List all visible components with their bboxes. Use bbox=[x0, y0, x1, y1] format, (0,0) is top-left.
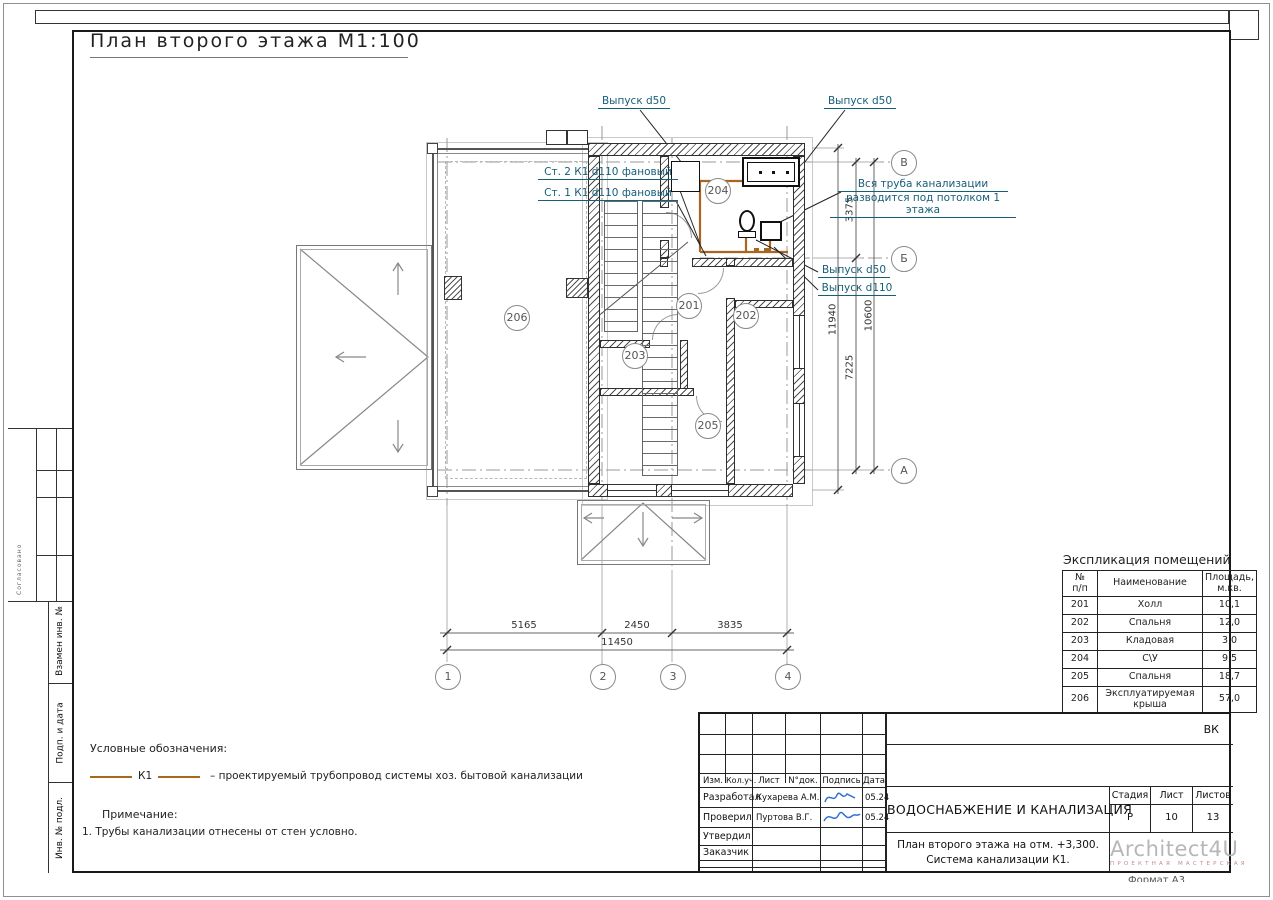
window bbox=[608, 484, 656, 497]
tb-sheets-header: Листов bbox=[1193, 790, 1233, 801]
dim-7225: 7225 bbox=[845, 348, 856, 388]
title-block: Изм. Кол.уч. Лист N°док. Подпись Дата Ра… bbox=[698, 712, 1231, 873]
sink bbox=[760, 221, 782, 241]
cell-num: 201 bbox=[1063, 597, 1098, 615]
dim-2450: 2450 bbox=[607, 620, 667, 631]
dim-10600: 10600 bbox=[864, 296, 875, 336]
tb-line bbox=[887, 832, 1233, 833]
cell-area: 9,5 bbox=[1203, 651, 1257, 669]
tb-line bbox=[820, 714, 821, 871]
tb-line bbox=[887, 744, 1233, 745]
tb-role-client: Заказчик bbox=[703, 847, 749, 858]
wall-bottom bbox=[588, 484, 608, 497]
company-logo-subtitle: ПРОЕКТНАЯ МАСТЕРСКАЯ bbox=[1110, 861, 1233, 867]
note-1: 1. Трубы канализации отнесены от стен ус… bbox=[82, 826, 357, 838]
tb-line bbox=[700, 827, 885, 828]
left-gable-roof-inner bbox=[300, 249, 428, 466]
bathtub-dot bbox=[759, 171, 762, 174]
chimney-block bbox=[567, 130, 588, 145]
col-header-area: Площадь, м.кв. bbox=[1203, 571, 1257, 597]
tb-sheet-header: Лист bbox=[1151, 790, 1192, 801]
tb-line bbox=[700, 754, 885, 755]
side-line bbox=[36, 497, 72, 498]
stair-flight-left bbox=[604, 200, 638, 332]
bathtub-dot bbox=[786, 171, 789, 174]
col-header-name: Наименование bbox=[1098, 571, 1203, 597]
room-label-203: 203 bbox=[622, 343, 648, 369]
cell-name: Кладовая bbox=[1098, 633, 1203, 651]
annotation-outlet-d50-left: Выпуск d50 bbox=[598, 95, 670, 109]
annotation-ceiling-note-2: разводится под потолком 1 этажа bbox=[830, 192, 1016, 218]
parapet-post bbox=[427, 143, 438, 154]
stair-flight-right bbox=[642, 200, 678, 476]
company-logo: Architect4U bbox=[1110, 837, 1233, 861]
annotation-ceiling-note-1: Вся труба канализации bbox=[838, 178, 1008, 192]
tb-date-developed: 05.24 bbox=[865, 793, 889, 803]
window bbox=[793, 316, 805, 368]
tb-role-checked: Проверил bbox=[703, 812, 752, 823]
side-line bbox=[36, 555, 72, 556]
sidebar-approve-label: Согласовано bbox=[16, 544, 23, 595]
partition-202-left bbox=[726, 258, 735, 266]
explication-title: Экспликация помещений bbox=[1063, 552, 1229, 567]
signature-checked bbox=[822, 808, 862, 826]
side-line bbox=[8, 428, 72, 429]
tb-project-title: ВОДОСНАБЖЕНИЕ И КАНАЛИЗАЦИЯ bbox=[887, 802, 1109, 817]
cell-area: 18,7 bbox=[1203, 669, 1257, 687]
cell-area: 57,0 bbox=[1203, 687, 1257, 713]
window bbox=[672, 484, 728, 497]
tb-line bbox=[862, 714, 863, 871]
chimney-block bbox=[546, 130, 567, 145]
wall-top bbox=[588, 143, 805, 156]
cell-num: 203 bbox=[1063, 633, 1098, 651]
tb-name-checked: Пуртова В.Г. bbox=[756, 813, 812, 823]
table-row: 204 С\У 9,5 bbox=[1063, 651, 1257, 669]
signature-developed bbox=[822, 788, 862, 806]
tb-line bbox=[887, 786, 1233, 787]
k1-line-segment bbox=[90, 776, 132, 778]
tb-col-podpis: Подпись bbox=[821, 776, 862, 786]
dim-5165: 5165 bbox=[494, 620, 554, 631]
cell-name: С\У bbox=[1098, 651, 1203, 669]
tb-role-developed: Разработал bbox=[703, 792, 761, 803]
k1-line-segment bbox=[158, 776, 200, 778]
k1-label: К1 bbox=[138, 770, 152, 782]
wall-right bbox=[793, 456, 805, 484]
tb-col-list: Лист bbox=[753, 776, 785, 786]
tb-stage-header: Стадия bbox=[1110, 790, 1150, 801]
tb-date-checked: 05.24 bbox=[865, 813, 889, 823]
annotation-riser-2: Ст. 2 К1 d110 фановый bbox=[538, 166, 678, 180]
bathtub bbox=[742, 157, 800, 187]
table-row: 205 Спальня 18,7 bbox=[1063, 669, 1257, 687]
wall-pilaster bbox=[444, 276, 462, 300]
table-row: 201 Холл 10,1 bbox=[1063, 597, 1257, 615]
tb-line bbox=[700, 845, 885, 846]
cell-name: Спальня bbox=[1098, 615, 1203, 633]
cell-area: 12,0 bbox=[1203, 615, 1257, 633]
left-gable-roof bbox=[296, 245, 432, 470]
format-note-clipped: Формат А3 bbox=[1128, 875, 1198, 882]
wall-left bbox=[588, 156, 600, 484]
side-line bbox=[36, 470, 72, 471]
k1-description: – проектируемый трубопровод системы хоз.… bbox=[210, 770, 583, 782]
dim-11450: 11450 bbox=[587, 637, 647, 648]
cell-num: 204 bbox=[1063, 651, 1098, 669]
tb-col-ndok: N°док. bbox=[786, 776, 820, 786]
cell-area: 10,1 bbox=[1203, 597, 1257, 615]
table-row: 206 Эксплуатируемая крыша 57,0 bbox=[1063, 687, 1257, 713]
axis-bubble-2: 2 bbox=[590, 664, 616, 690]
room-label-204: 204 bbox=[705, 178, 731, 204]
tb-line bbox=[700, 734, 885, 735]
cell-name: Холл bbox=[1098, 597, 1203, 615]
annotation-outlet-d110: Выпуск d110 bbox=[818, 282, 896, 296]
drawing-sheet: План второго этажа М1:100 bbox=[0, 0, 1273, 900]
wall-bottom bbox=[656, 484, 672, 497]
axis-bubble-1: 1 bbox=[435, 664, 461, 690]
axis-bubble-A: А bbox=[891, 458, 917, 484]
annotation-outlet-d50-right: Выпуск d50 bbox=[824, 95, 896, 109]
tb-col-izm: Изм. bbox=[701, 776, 725, 786]
room-label-202: 202 bbox=[733, 303, 759, 329]
note-heading: Примечание: bbox=[102, 808, 178, 821]
tb-sheet-title-1: План второго этажа на отм. +3,300. bbox=[887, 839, 1109, 851]
tb-name-developed: Кухарева А.М. bbox=[756, 793, 819, 803]
partition-204-bottom bbox=[692, 258, 793, 267]
cell-num: 206 bbox=[1063, 687, 1098, 713]
dim-11940: 11940 bbox=[828, 300, 839, 340]
col-header-num: № п/п bbox=[1063, 571, 1098, 597]
tb-sheet-value: 10 bbox=[1151, 812, 1192, 823]
sidebar-label-podp: Подп. и дата bbox=[56, 691, 66, 776]
table-header-row: № п/п Наименование Площадь, м.кв. bbox=[1063, 571, 1257, 597]
toilet bbox=[739, 210, 755, 232]
table-row: 202 Спальня 12,0 bbox=[1063, 615, 1257, 633]
axis-bubble-B: Б bbox=[891, 246, 917, 272]
cell-name: Спальня bbox=[1098, 669, 1203, 687]
legend-heading: Условные обозначения: bbox=[90, 742, 227, 755]
tb-doc-code: ВК bbox=[887, 723, 1219, 736]
cell-area: 3,0 bbox=[1203, 633, 1257, 651]
room-label-205: 205 bbox=[695, 413, 721, 439]
side-line bbox=[48, 782, 72, 783]
tb-line bbox=[700, 773, 885, 774]
tb-stage-value: Р bbox=[1110, 812, 1150, 823]
wall-bottom bbox=[728, 484, 793, 497]
cell-num: 202 bbox=[1063, 615, 1098, 633]
side-line bbox=[48, 683, 72, 684]
sidebar-label-vzamen: Взамен инв. № bbox=[55, 606, 65, 676]
tb-role-approved: Утвердил bbox=[703, 831, 751, 842]
tb-sheet-title-2: Система канализации К1. bbox=[887, 854, 1109, 866]
wall-pilaster bbox=[566, 278, 588, 298]
partition-202-left bbox=[726, 298, 735, 484]
table-row: 203 Кладовая 3,0 bbox=[1063, 633, 1257, 651]
cell-name: Эксплуатируемая крыша bbox=[1098, 687, 1203, 713]
tb-col-koluch: Кол.уч. bbox=[726, 776, 752, 785]
side-line bbox=[56, 428, 57, 601]
room-label-206: 206 bbox=[504, 305, 530, 331]
format-note: Формат А3 bbox=[1128, 875, 1185, 882]
tb-line bbox=[700, 860, 885, 861]
cell-num: 205 bbox=[1063, 669, 1098, 687]
parapet-post bbox=[427, 486, 438, 497]
axis-bubble-4: 4 bbox=[775, 664, 801, 690]
tb-line bbox=[700, 867, 885, 868]
porch-roof-inner bbox=[581, 504, 706, 561]
axis-bubble-V: В bbox=[891, 150, 917, 176]
side-line bbox=[36, 428, 37, 601]
tb-col-data: Дата bbox=[863, 776, 885, 786]
axis-bubble-3: 3 bbox=[660, 664, 686, 690]
side-line bbox=[48, 601, 49, 873]
side-line bbox=[8, 601, 72, 602]
dim-3835: 3835 bbox=[700, 620, 760, 631]
window bbox=[793, 404, 805, 456]
annotation-outlet-d50-mid: Выпуск d50 bbox=[818, 264, 890, 278]
sidebar-label-inv: Инв. № подл. bbox=[55, 789, 65, 867]
toilet-tank bbox=[738, 231, 756, 238]
bathtub-dot bbox=[772, 171, 775, 174]
wall-right bbox=[793, 368, 805, 404]
tb-sheets-value: 13 bbox=[1193, 812, 1233, 823]
room-label-201: 201 bbox=[676, 293, 702, 319]
explication-table: № п/п Наименование Площадь, м.кв. 201 Хо… bbox=[1062, 570, 1257, 713]
porch-roof bbox=[577, 500, 710, 565]
annotation-riser-1: Ст. 1 К1 d110 фановый bbox=[538, 187, 678, 201]
